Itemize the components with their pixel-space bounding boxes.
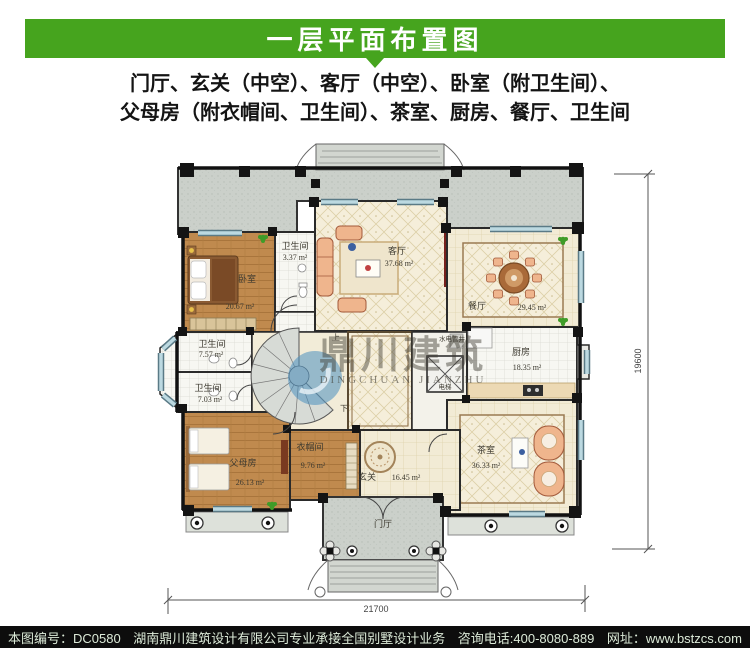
area-cloak: 9.76 m² [301,461,326,470]
area-bedroom: 20.67 m² [226,302,255,311]
sofa-long [317,238,333,296]
area-dining: 29.45 m² [518,303,547,312]
label-bath-small: 卫生间 [281,240,308,251]
room-summary-line1: 门厅、玄关（中空）、客厅（中空）、卧室（附卫生间）、 [0,70,750,99]
page-title: 一层平面布置图 [266,20,483,57]
label-entry: 玄关 [358,471,376,482]
footer-plan-no: 本图编号：DC0580 [8,628,121,647]
room-living [315,201,451,331]
title-bar: 一层平面布置图 [25,19,725,58]
footer-bar: 本图编号：DC0580 湖南鼎川建筑设计有限公司专业承接全国别墅设计业务 咨询电… [0,626,750,648]
room-summary: 门厅、玄关（中空）、客厅（中空）、卧室（附卫生间）、 父母房（附衣帽间、卫生间）… [0,70,750,128]
label-shaft: 水电管井 [439,334,466,343]
area-bath-small: 3.37 m² [283,253,308,262]
footer-company: 湖南鼎川建筑设计有限公司专业承接全国别墅设计业务 [133,628,445,647]
cabinet [281,440,288,474]
person-figure [348,243,356,251]
dim-height: 19600 [633,348,643,373]
label-parents: 父母房 [229,457,256,468]
room-bedroom [183,232,275,332]
label-stairs-down: 下 [340,404,348,413]
poster-page: 一层平面布置图 门厅、玄关（中空）、客厅（中空）、卧室（附卫生间）、 父母房（附… [0,0,750,648]
footer-website: 网址：www.bstzcs.com [607,628,742,647]
wardrobe [346,443,357,489]
porch [308,497,458,597]
label-cloak: 衣帽间 [296,441,323,452]
label-dining: 餐厅 [468,300,486,311]
room-dining [447,228,580,333]
entry-steps [328,560,438,592]
area-entry: 16.45 m² [392,473,421,482]
area-living: 37.68 m² [385,259,414,268]
label-kitchen: 厨房 [512,346,530,357]
dining-set [487,251,542,305]
area-bath2: 7.03 m² [198,395,223,404]
room-tearoom [447,400,577,515]
label-bath1: 卫生间 [198,338,225,349]
label-porch: 门厅 [374,518,392,529]
dim-width: 21700 [363,604,388,614]
label-bath2: 卫生间 [194,382,221,393]
room-summary-line2: 父母房（附衣帽间、卫生间）、茶室、厨房、餐厅、卫生间 [0,99,750,128]
area-kitchen: 18.35 m² [513,363,542,372]
title-pointer-triangle [366,58,384,68]
area-bath1: 7.57 m² [199,350,224,359]
footer-phone: 咨询电话:400-8080-889 [458,628,595,647]
label-bedroom: 卧室 [238,273,256,284]
label-stairs-up: 上 [332,333,340,342]
area-parents: 26.13 m² [236,478,265,487]
label-tearoom: 茶室 [477,444,495,455]
area-tearoom: 36.33 m² [472,461,501,470]
floor-plan: 鼎川建筑 DINGCHUAN JIANZHU [0,130,750,625]
watermark-en: DINGCHUAN JIANZHU [320,374,487,386]
stove [523,385,543,396]
label-living: 客厅 [388,245,406,256]
label-elevator: 电梯 [439,382,453,391]
